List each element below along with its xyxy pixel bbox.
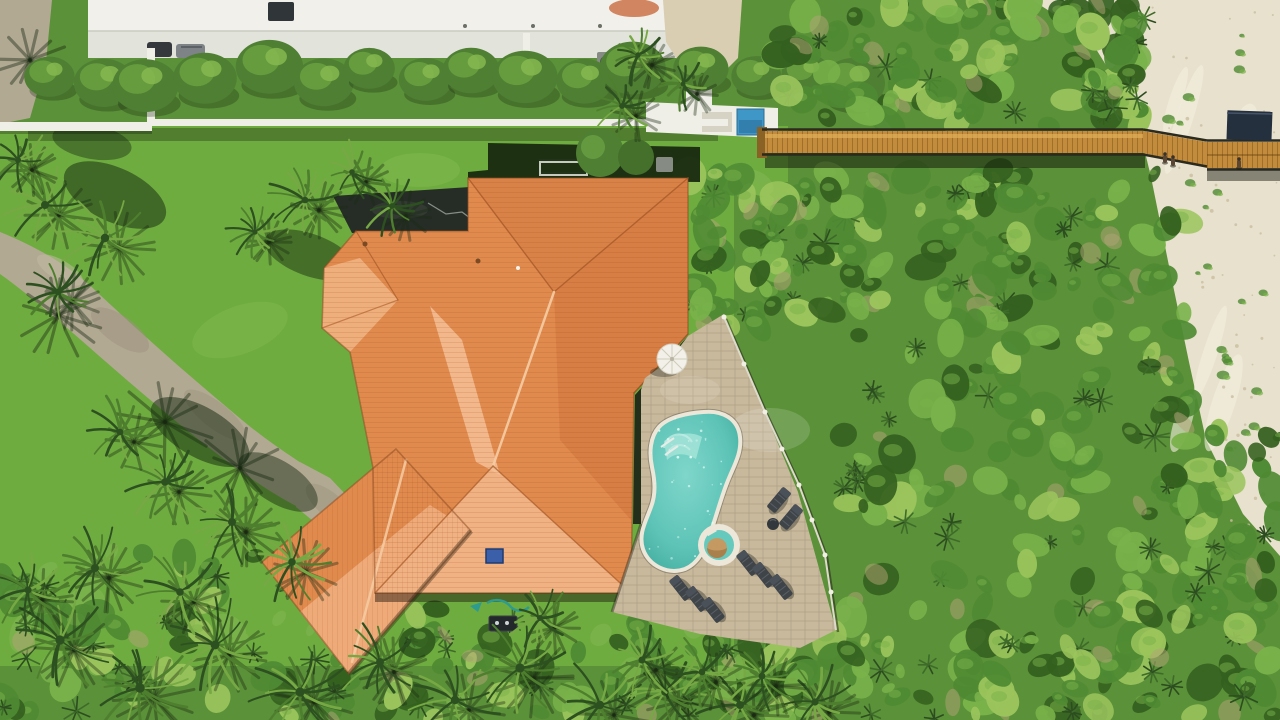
scrub-bush-highlight xyxy=(1032,658,1046,667)
palm-crown xyxy=(288,558,296,566)
sand-speckle xyxy=(1231,395,1234,398)
hedge-tree-light xyxy=(46,63,62,76)
sand-speckle xyxy=(1250,396,1253,399)
roof-vent xyxy=(531,24,535,28)
table-detail xyxy=(495,621,499,625)
scrub-bush-highlight xyxy=(1067,56,1082,66)
fence-post xyxy=(742,362,747,367)
roof-vent xyxy=(598,24,602,28)
sand-speckle xyxy=(1259,232,1261,234)
scrub-bush-highlight xyxy=(840,292,847,297)
sand-speckle xyxy=(1185,57,1188,60)
water-sparkle xyxy=(703,466,705,468)
sand-speckle xyxy=(1211,276,1215,280)
skylight xyxy=(486,549,503,563)
sand-speckle xyxy=(1189,174,1193,178)
water-sparkle xyxy=(674,418,676,420)
sand-speckle xyxy=(1243,314,1245,316)
scrub-bush-highlight xyxy=(1037,195,1045,200)
palm-crown xyxy=(515,663,524,672)
lawn-light-patch xyxy=(380,153,460,187)
scrub-bush-highlight xyxy=(880,641,890,648)
water-sparkle xyxy=(709,514,710,515)
palm-crown xyxy=(451,696,459,704)
scrub-bush-highlight xyxy=(860,636,866,640)
sand-speckle xyxy=(1201,286,1204,289)
scrub-bush-highlight xyxy=(1132,328,1142,335)
scrub-bush-highlight xyxy=(1123,18,1137,27)
sand-speckle xyxy=(1186,117,1190,121)
fence-post xyxy=(780,447,785,452)
hedge-tree-light xyxy=(468,55,486,70)
scrub-bush-highlight xyxy=(1183,564,1192,570)
scrub-bush-highlight xyxy=(593,629,604,636)
sand-speckle xyxy=(1168,127,1170,129)
scrub-bush-highlight xyxy=(1228,532,1245,543)
sand-speckle xyxy=(1244,423,1247,426)
aerial-photo-stage xyxy=(0,0,1280,720)
water-sparkle xyxy=(671,444,672,445)
scrub-bush-highlight xyxy=(1069,280,1076,285)
palm-crown xyxy=(211,641,220,650)
scrub-bush-highlight xyxy=(768,232,776,237)
palm-crown xyxy=(55,635,64,644)
scrub-bush-highlight xyxy=(943,223,960,234)
boardwalk-shade-canopy xyxy=(1226,110,1272,141)
scrub-bush-highlight xyxy=(790,304,806,315)
water-sparkle xyxy=(707,510,709,512)
scrub-bush-highlight xyxy=(1254,602,1268,611)
person-head xyxy=(1171,155,1175,159)
scrub-bush-highlight xyxy=(1112,530,1123,537)
scrub-bush-highlight xyxy=(770,203,788,215)
scrub-bush-highlight xyxy=(909,474,920,481)
palm-crown xyxy=(228,518,236,526)
scrub-bush xyxy=(761,40,800,68)
palm-crown xyxy=(736,701,744,709)
sand-speckle xyxy=(1276,182,1278,184)
scrub-bush-highlight xyxy=(928,485,944,496)
sand-speckle xyxy=(1260,337,1263,340)
frond-shadow xyxy=(0,59,30,60)
scrub-bush-highlight xyxy=(1096,325,1106,331)
scrub-bush-highlight xyxy=(1086,215,1095,221)
scrub-bush-highlight xyxy=(1005,56,1012,61)
scrub-bush-highlight xyxy=(1168,370,1178,376)
scrub-bush-highlight xyxy=(856,454,865,460)
scrub-bush-highlight xyxy=(1119,542,1137,554)
sand-speckle xyxy=(1234,223,1237,226)
aerial-photo xyxy=(0,0,1280,720)
hedge-tree-light xyxy=(581,66,599,81)
palm-crown xyxy=(635,52,640,57)
sand-speckle xyxy=(1236,434,1239,437)
scrub-bush-highlight xyxy=(1072,530,1081,536)
scrub-bush-highlight xyxy=(1142,349,1155,358)
canopy-edge xyxy=(1227,113,1272,114)
scrub-bush-highlight xyxy=(772,261,781,267)
scrub-bush-highlight xyxy=(895,667,901,671)
scrub-bush-highlight xyxy=(1122,68,1135,77)
scrub-bush-highlight xyxy=(1056,12,1069,21)
palm-crown xyxy=(639,657,646,664)
palm-crown xyxy=(117,429,124,436)
scrub-bush-highlight xyxy=(1139,606,1154,616)
sand-speckle xyxy=(1215,184,1218,187)
scrub-bush-highlight xyxy=(273,614,281,619)
sand-speckle xyxy=(1243,387,1246,390)
scrub-bush-highlight xyxy=(849,12,857,18)
sand-speckle xyxy=(1270,456,1272,458)
hedge-tree-light xyxy=(141,67,162,84)
scrub-bush-highlight xyxy=(1153,271,1166,280)
palm-crown xyxy=(302,197,309,204)
scrub-bush-highlight xyxy=(883,96,894,104)
umbrella-center xyxy=(670,357,674,361)
scrub-bush-highlight xyxy=(414,631,426,639)
sand-speckle xyxy=(1251,294,1253,296)
scrub-bush-highlight xyxy=(1154,402,1169,412)
sand-speckle xyxy=(1235,344,1239,348)
scrub-bush-highlight xyxy=(811,246,824,255)
wall-shadow xyxy=(0,131,152,134)
scrub-bush-highlight xyxy=(482,631,499,643)
palm-crown xyxy=(349,169,355,175)
sand-speckle xyxy=(1210,209,1214,213)
scrub-bush-highlight xyxy=(690,296,705,306)
scrub-bush-highlight xyxy=(1111,185,1123,193)
hedge-tree-light xyxy=(366,54,382,67)
scrub-bush-highlight xyxy=(1229,619,1244,629)
scrub-bush-highlight xyxy=(1212,589,1219,594)
water-sparkle xyxy=(694,555,696,557)
scrub-bush-highlight xyxy=(1054,694,1062,699)
scrub-bush-highlight xyxy=(1069,247,1079,254)
water-sparkle xyxy=(684,528,686,530)
scrub-bush-highlight xyxy=(870,257,885,267)
palm-crown xyxy=(389,203,395,209)
scrub-bush-highlight xyxy=(746,316,762,327)
palm-crown xyxy=(161,478,169,486)
scrub-bush-highlight xyxy=(843,269,855,277)
scrub-bush-highlight xyxy=(1207,430,1217,437)
palm-crown xyxy=(15,157,21,163)
scrub-bush-highlight xyxy=(1259,653,1273,662)
water-sparkle xyxy=(701,421,702,422)
scrub-bush-highlight xyxy=(1080,22,1098,34)
scrub-bush-highlight xyxy=(843,245,856,254)
palm-crown xyxy=(91,564,99,572)
water-sparkle xyxy=(670,557,673,560)
sand-speckle xyxy=(1254,11,1257,14)
palm-frond xyxy=(762,650,764,676)
scrub-bush-highlight xyxy=(819,166,836,177)
palm-crown xyxy=(376,658,384,666)
sand-speckle xyxy=(1226,199,1229,202)
yard-table xyxy=(489,616,517,631)
scrub-bush-highlight xyxy=(745,250,753,255)
scrub-bush-highlight xyxy=(1066,682,1078,690)
water-sparkle xyxy=(651,452,652,453)
scrub-bush-highlight xyxy=(754,220,762,225)
sand-speckle xyxy=(1178,167,1180,169)
scrub-bush-highlight xyxy=(840,645,855,655)
water-sparkle xyxy=(667,438,670,441)
scrub-bush-highlight xyxy=(977,579,987,585)
scrub-bush-highlight xyxy=(999,393,1017,405)
water-sparkle xyxy=(669,449,670,450)
scrub-bush-highlight xyxy=(1008,229,1022,239)
palm-crown xyxy=(699,669,706,676)
sand-speckle xyxy=(1230,519,1233,522)
scrub-bush-highlight xyxy=(884,444,903,456)
water-sparkle xyxy=(688,485,690,487)
scrub-bush-highlight xyxy=(1142,636,1156,645)
hedge-tree-light xyxy=(521,59,542,76)
scrub-bush-highlight xyxy=(1006,187,1023,198)
scrub-bush-highlight xyxy=(766,301,775,307)
boardwalk-highlight xyxy=(765,134,1143,138)
scrub-bush-highlight xyxy=(1094,606,1110,617)
water-sparkle xyxy=(688,440,689,441)
scrub-bush-highlight xyxy=(995,26,1009,36)
spa xyxy=(698,524,740,566)
wall-west xyxy=(0,122,152,131)
ac-equipment xyxy=(656,157,673,172)
palm-crown xyxy=(24,586,31,593)
water-sparkle xyxy=(684,445,685,446)
palm-crown xyxy=(596,701,604,709)
fence-post xyxy=(829,590,834,595)
water-sparkle xyxy=(649,548,651,550)
roof-vent-dot xyxy=(476,259,481,264)
scrub-bush-highlight xyxy=(1124,427,1135,435)
palm-crown xyxy=(176,588,184,596)
scrub-bush-highlight xyxy=(1083,371,1100,382)
palm-crown xyxy=(681,82,686,87)
water-sparkle xyxy=(700,429,703,432)
water-sparkle xyxy=(657,546,658,547)
fence-post xyxy=(722,315,727,320)
sand-speckle xyxy=(1152,7,1154,9)
palm-crown xyxy=(101,234,109,242)
sand-speckle xyxy=(1250,225,1253,228)
scrub-bush-highlight xyxy=(1067,411,1082,421)
scrub-bush-highlight xyxy=(855,37,864,43)
water-sparkle xyxy=(658,430,660,432)
scrub-bush-highlight xyxy=(1190,460,1208,472)
person-head xyxy=(1163,152,1167,156)
scrub-bush-highlight xyxy=(867,475,885,487)
sand-speckle xyxy=(1272,14,1274,16)
scrub-bush-highlight xyxy=(991,691,1007,702)
palm-crown xyxy=(811,698,818,705)
person-head xyxy=(1237,157,1241,161)
sand-speckle xyxy=(1200,124,1203,127)
table-detail xyxy=(505,621,509,625)
palm-crown xyxy=(135,683,145,693)
scrub-bush-highlight xyxy=(979,48,995,59)
scrub-bush-highlight xyxy=(710,170,717,174)
rooftop-dark-box xyxy=(268,2,294,21)
scrub-bush-highlight xyxy=(1014,17,1030,27)
scrub-bush-highlight xyxy=(1087,700,1102,710)
water-sparkle xyxy=(720,461,722,463)
person xyxy=(1171,158,1175,166)
palm-crown xyxy=(759,673,766,680)
scrub-bush-highlight xyxy=(1102,274,1121,287)
scrub-bush-highlight xyxy=(964,8,979,18)
hedge-tree-light xyxy=(849,66,869,82)
palm-crown xyxy=(55,289,62,296)
scrub-bush-highlight xyxy=(927,242,943,253)
water-sparkle xyxy=(705,439,707,441)
person xyxy=(1163,155,1167,163)
water-sparkle xyxy=(671,481,673,483)
palm-crown xyxy=(619,103,625,109)
palm-crown xyxy=(537,615,543,621)
sand-speckle xyxy=(1273,131,1275,133)
scrub-bush-highlight xyxy=(724,170,741,182)
sand-speckle xyxy=(1222,386,1225,389)
scrub-bush-highlight xyxy=(1162,558,1173,565)
roof-vent-white xyxy=(516,266,520,270)
scrub-bush-highlight xyxy=(944,373,960,384)
palm-crown xyxy=(41,201,49,209)
scrub-bush-highlight xyxy=(1039,709,1049,715)
hedge-tree-light xyxy=(320,66,339,82)
water-sparkle xyxy=(698,462,699,463)
fence-post xyxy=(823,553,828,558)
scrub-bush-highlight xyxy=(1267,710,1276,716)
water-sparkle xyxy=(677,456,680,459)
scrub-bush-highlight xyxy=(1226,577,1237,584)
fence-post xyxy=(797,483,802,488)
scrub-bush-highlight xyxy=(951,44,962,51)
scrub-bush-highlight xyxy=(940,7,953,16)
round-tree xyxy=(618,139,654,175)
water-sparkle xyxy=(712,484,714,486)
hedge-tree-light xyxy=(201,60,221,77)
hedge-tree-light xyxy=(422,64,439,78)
sand-speckle xyxy=(1252,364,1254,366)
scrub-bush-highlight xyxy=(1189,517,1206,528)
scrub-bush-highlight xyxy=(820,112,829,118)
sand-speckle xyxy=(1235,333,1238,336)
scrub-bush-highlight xyxy=(800,182,810,188)
hedge-tree-light xyxy=(698,53,716,67)
sand-speckle xyxy=(1201,281,1204,284)
water-sparkle xyxy=(720,483,722,485)
scrub-bush-highlight xyxy=(1211,606,1217,610)
round-tree-highlight xyxy=(581,135,605,159)
scrub-bush-highlight xyxy=(1176,434,1190,443)
sand-speckle xyxy=(1254,497,1257,500)
sand-speckle xyxy=(1222,274,1224,276)
scrub-bush-highlight xyxy=(1052,439,1066,448)
sand-speckle xyxy=(1172,56,1175,59)
scrub-bush-highlight xyxy=(1195,614,1203,619)
sand-speckle xyxy=(1273,255,1275,257)
scrub-bush-highlight xyxy=(864,279,874,285)
water-sparkle xyxy=(677,428,680,431)
scrub-bush-highlight xyxy=(915,206,922,210)
water-sparkle xyxy=(695,439,697,441)
scrub-bush-highlight xyxy=(1149,170,1157,175)
deck-light-patch xyxy=(660,376,720,404)
water-sparkle xyxy=(673,480,674,481)
scrub-bush-highlight xyxy=(1146,697,1154,702)
scrub-bush-highlight xyxy=(822,183,834,191)
scrub-bush-highlight xyxy=(937,283,948,290)
water-sparkle xyxy=(689,456,692,459)
hedge-tree-light xyxy=(265,48,287,66)
water-sparkle xyxy=(677,536,679,538)
palm-crown xyxy=(295,687,304,696)
scrub-bush-highlight xyxy=(1077,449,1088,456)
scrub-bush-highlight xyxy=(802,197,809,201)
sand-speckle xyxy=(1229,18,1231,20)
sand-speckle xyxy=(1273,367,1275,369)
roof-vent xyxy=(463,24,467,28)
fence-post xyxy=(763,410,768,415)
scrub-bush-highlight xyxy=(957,658,973,669)
scrub-bush-highlight xyxy=(1007,250,1014,255)
scrub-bush-highlight xyxy=(1076,656,1092,666)
scrub-bush-highlight xyxy=(897,48,907,55)
person xyxy=(1237,160,1241,168)
scrub-bush-highlight xyxy=(1012,428,1030,440)
scrub-bush-highlight xyxy=(776,82,792,92)
scrub-bush-highlight xyxy=(848,299,861,308)
roof-vent-dot xyxy=(363,242,368,247)
palm-crown xyxy=(252,229,257,234)
fence-post xyxy=(810,518,815,523)
